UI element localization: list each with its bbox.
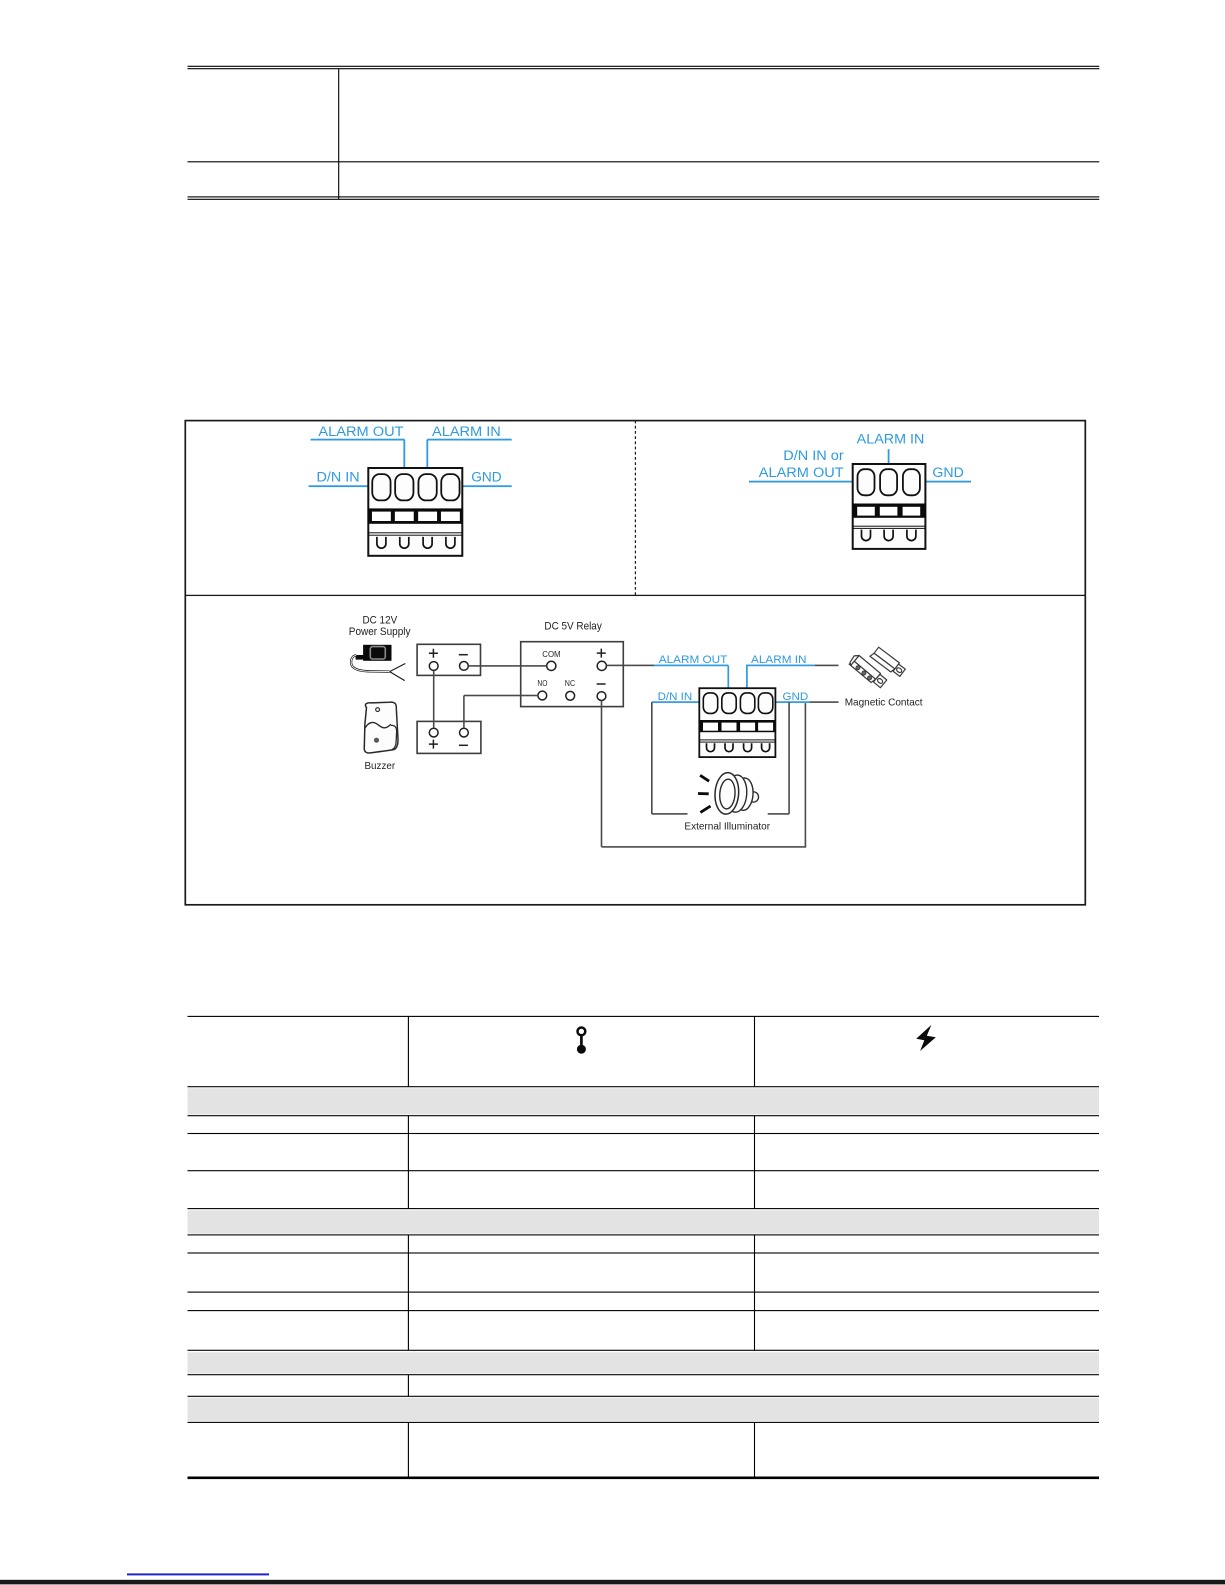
svg-text:Power Supply: Power Supply (349, 626, 411, 638)
svg-text:ALARM IN: ALARM IN (432, 424, 501, 440)
svg-text:External Illuminator: External Illuminator (684, 822, 770, 833)
svg-text:ALARM OUT: ALARM OUT (318, 424, 404, 440)
svg-text:Magnetic Contact: Magnetic Contact (845, 697, 923, 708)
svg-text:ALARM OUT: ALARM OUT (759, 465, 844, 481)
svg-text:GND: GND (471, 469, 501, 485)
svg-text:DC 12V: DC 12V (363, 615, 398, 627)
svg-text:D/N IN: D/N IN (317, 469, 360, 485)
svg-text:Buzzer: Buzzer (365, 761, 396, 772)
svg-text:NC: NC (565, 679, 575, 688)
svg-text:D/N IN or: D/N IN or (783, 448, 844, 464)
svg-text:GND: GND (932, 465, 963, 481)
svg-text:DC 5V Relay: DC 5V Relay (544, 620, 602, 632)
svg-text:NO: NO (537, 679, 547, 688)
svg-text:ALARM IN: ALARM IN (857, 432, 925, 448)
svg-text:ALARM IN: ALARM IN (751, 654, 807, 666)
svg-text:ALARM OUT: ALARM OUT (659, 654, 728, 666)
svg-text:D/N IN: D/N IN (658, 691, 693, 703)
svg-text:COM: COM (542, 650, 561, 659)
